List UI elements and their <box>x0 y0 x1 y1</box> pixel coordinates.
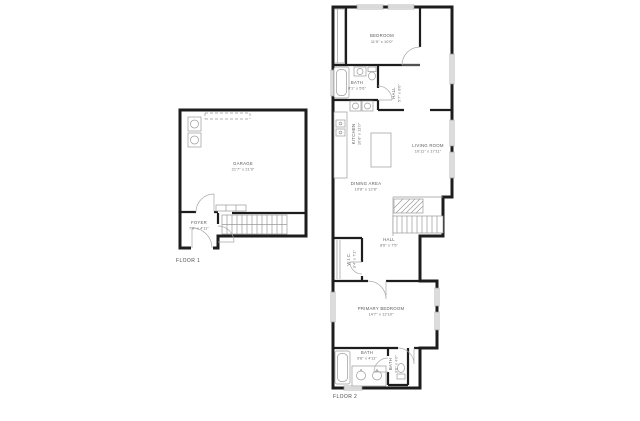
bath-wc-dims: 3'6" x 4'0" <box>394 354 399 373</box>
bath-wc-label: BATH <box>388 358 393 370</box>
kitchen-fixtures <box>334 112 391 178</box>
primary-bedroom-dims: 14'7" x 12'10" <box>369 312 394 317</box>
bath-lower-door <box>398 348 414 364</box>
stairs-floor1 <box>222 215 287 234</box>
bath-upper-label: BATH <box>351 80 363 85</box>
hall-upper-dims: 5'7" x 8'6" <box>397 83 402 102</box>
bath-lower-dims: 9'6" x 4'11" <box>357 356 378 361</box>
garage-label: GARAGE <box>233 161 253 166</box>
primary-bedroom-label: PRIMARY BEDROOM <box>358 306 405 311</box>
washer-dryer <box>350 101 373 111</box>
floor1-title: FLOOR 1 <box>176 258 200 264</box>
floor2-title: FLOOR 2 <box>333 394 357 400</box>
stairs-floor2 <box>393 197 443 236</box>
living-room-label: LIVING ROOM <box>412 143 444 148</box>
kitchen-island <box>371 133 391 167</box>
hall-upper-label: HALL <box>391 87 396 99</box>
kitchen-label: KITCHEN <box>351 124 356 145</box>
garage-dims: 21'7" x 21'9" <box>232 167 255 172</box>
floor-plan-page: GARAGE 21'7" x 21'9" FOYER 7'0" x 4'11" … <box>0 0 640 421</box>
garage-overhead-dashed <box>205 113 250 119</box>
bedroom-dims: 11'5" x 10'0" <box>371 39 394 44</box>
bedroom-label: BEDROOM <box>370 33 394 38</box>
garage-equipment <box>188 117 201 147</box>
floor-plan-drawing: GARAGE 21'7" x 21'9" FOYER 7'0" x 4'11" … <box>0 0 640 421</box>
living-room-dims: 10'11" x 17'11" <box>415 149 442 154</box>
bedroom-door <box>402 47 420 65</box>
kitchen-dims: 10'8" x 11'0" <box>357 122 362 145</box>
foyer-label: FOYER <box>191 220 207 225</box>
wic-dims: 3'4" x 7'1" <box>352 249 357 268</box>
bath-upper-dims: 8'1" x 5'6" <box>348 86 367 91</box>
dining-area-dims: 10'8" x 12'8" <box>355 187 378 192</box>
garage-step <box>216 205 246 211</box>
floor2-interior-walls <box>333 8 452 385</box>
wic-label: W.I.C. <box>346 252 351 265</box>
floor-1-plan: GARAGE 21'7" x 21'9" FOYER 7'0" x 4'11" … <box>176 110 306 264</box>
floor-2-plan: BEDROOM 11'5" x 10'0" BATH 8'1" x 5'6" H… <box>331 5 454 400</box>
foyer-entry-door <box>191 228 213 250</box>
dining-area-label: DINING AREA <box>351 181 381 186</box>
foyer-dims: 7'0" x 4'11" <box>189 226 210 231</box>
hall-middle-dims: 8'6" x 7'5" <box>380 243 399 248</box>
primary-bedroom-door <box>368 281 386 299</box>
bath-lower-label: BATH <box>361 350 373 355</box>
hall-middle-label: HALL <box>383 237 395 242</box>
foyer-garage-door <box>196 194 214 212</box>
bedroom-closet <box>335 9 345 63</box>
